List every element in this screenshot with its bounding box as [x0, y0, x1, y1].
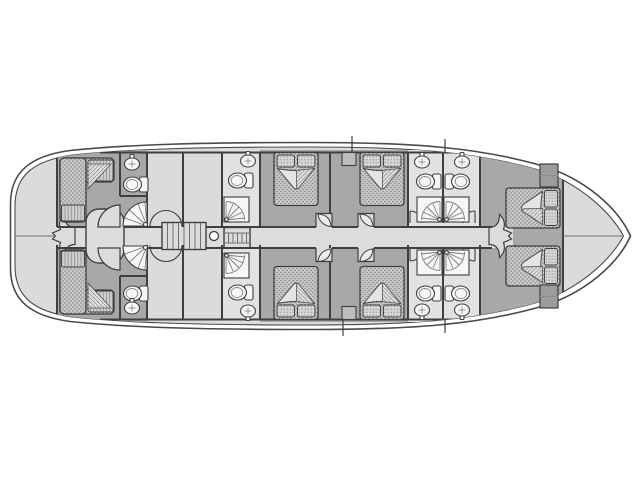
double-bed	[360, 267, 404, 320]
toilet	[417, 286, 442, 301]
shower	[417, 197, 442, 222]
double-bed	[274, 267, 318, 320]
shower	[417, 250, 442, 275]
shower	[224, 253, 249, 278]
cabinet	[342, 307, 356, 320]
yacht-deck-plan	[0, 0, 640, 480]
shower	[444, 250, 469, 275]
mast	[210, 232, 219, 241]
toilet	[124, 177, 149, 192]
page	[0, 0, 640, 480]
cabinet	[342, 153, 356, 166]
corridor	[57, 227, 513, 248]
toilet	[124, 286, 149, 301]
shower	[224, 197, 249, 222]
double-bed	[274, 153, 318, 206]
bow-bed-port	[506, 188, 560, 228]
bow-bed-starboard	[506, 246, 560, 286]
toilet	[445, 286, 470, 301]
shower	[444, 197, 469, 222]
toilet	[229, 285, 254, 300]
wardrobe-port	[540, 164, 558, 187]
toilet	[229, 173, 254, 188]
toilet	[417, 174, 442, 189]
wardrobe-starboard	[540, 285, 558, 308]
toilet	[445, 174, 470, 189]
double-bed	[360, 153, 404, 206]
steps	[224, 228, 250, 249]
